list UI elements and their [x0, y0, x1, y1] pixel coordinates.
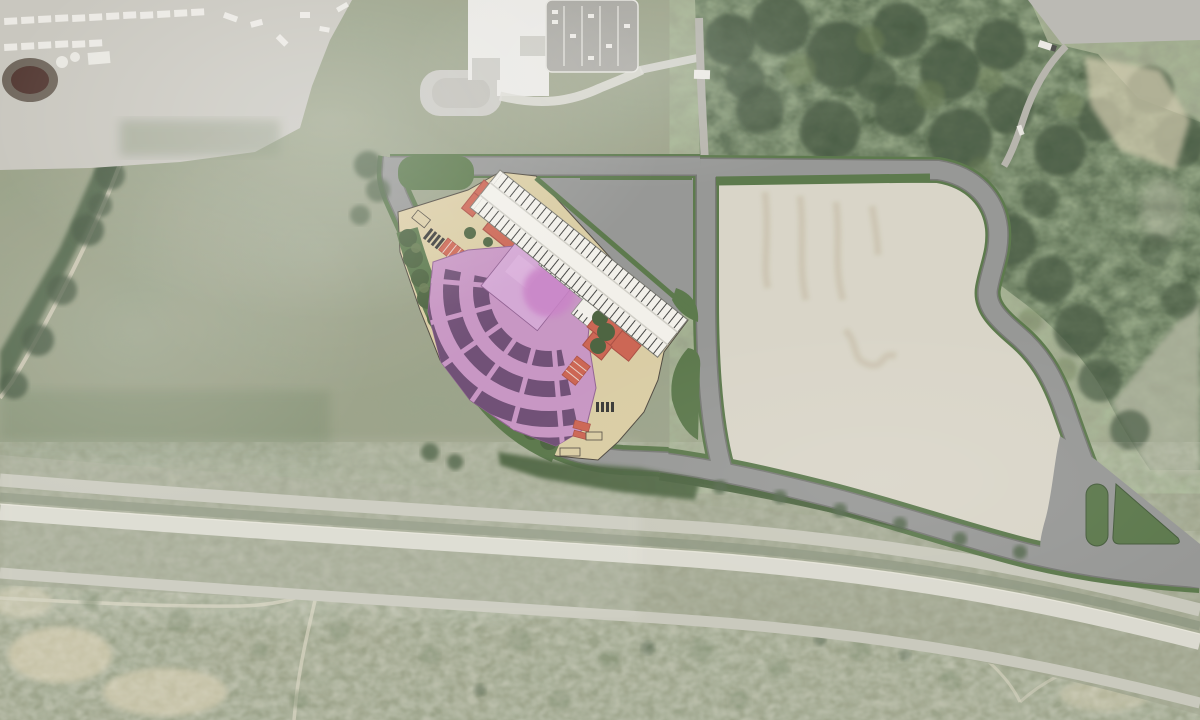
- atmospheric-haze: [0, 0, 1200, 720]
- aerial-site-plan-view: [0, 0, 1200, 720]
- aerial-map-canvas: [0, 0, 1200, 720]
- haze-wash: [0, 0, 1200, 720]
